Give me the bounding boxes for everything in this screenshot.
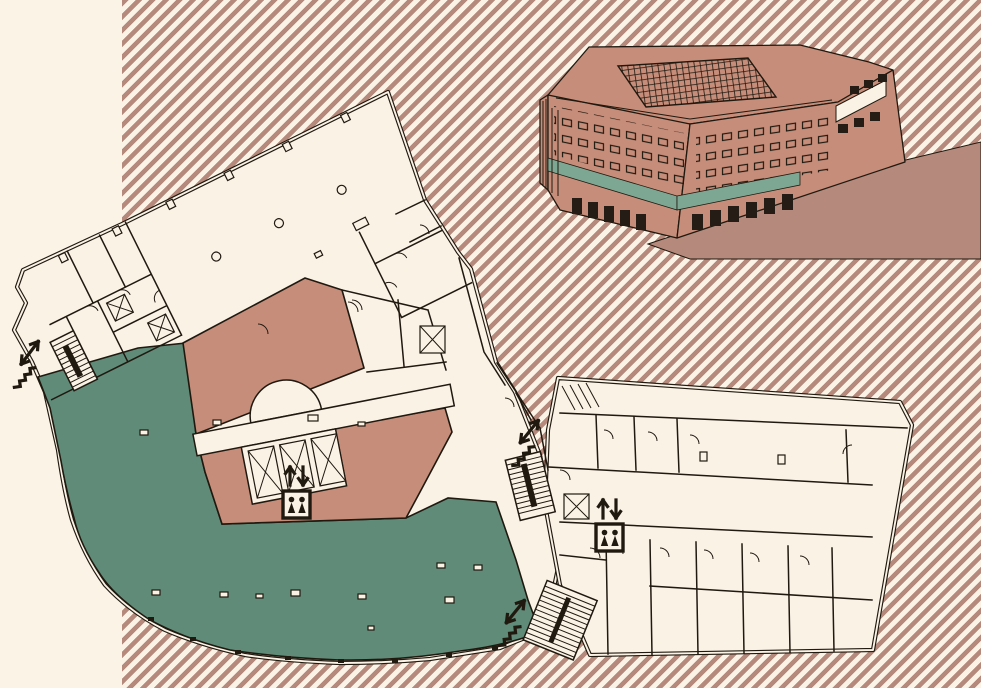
east-wing-plan xyxy=(545,378,912,655)
floor-plan-drawing xyxy=(0,0,981,688)
junction-elevator-shaft xyxy=(564,494,589,519)
drawing-sheet xyxy=(0,0,981,688)
building-axonometric xyxy=(540,45,981,259)
main-building-plan xyxy=(0,92,558,663)
left-corner-tower xyxy=(540,95,548,190)
northeast-shaft xyxy=(420,326,445,353)
